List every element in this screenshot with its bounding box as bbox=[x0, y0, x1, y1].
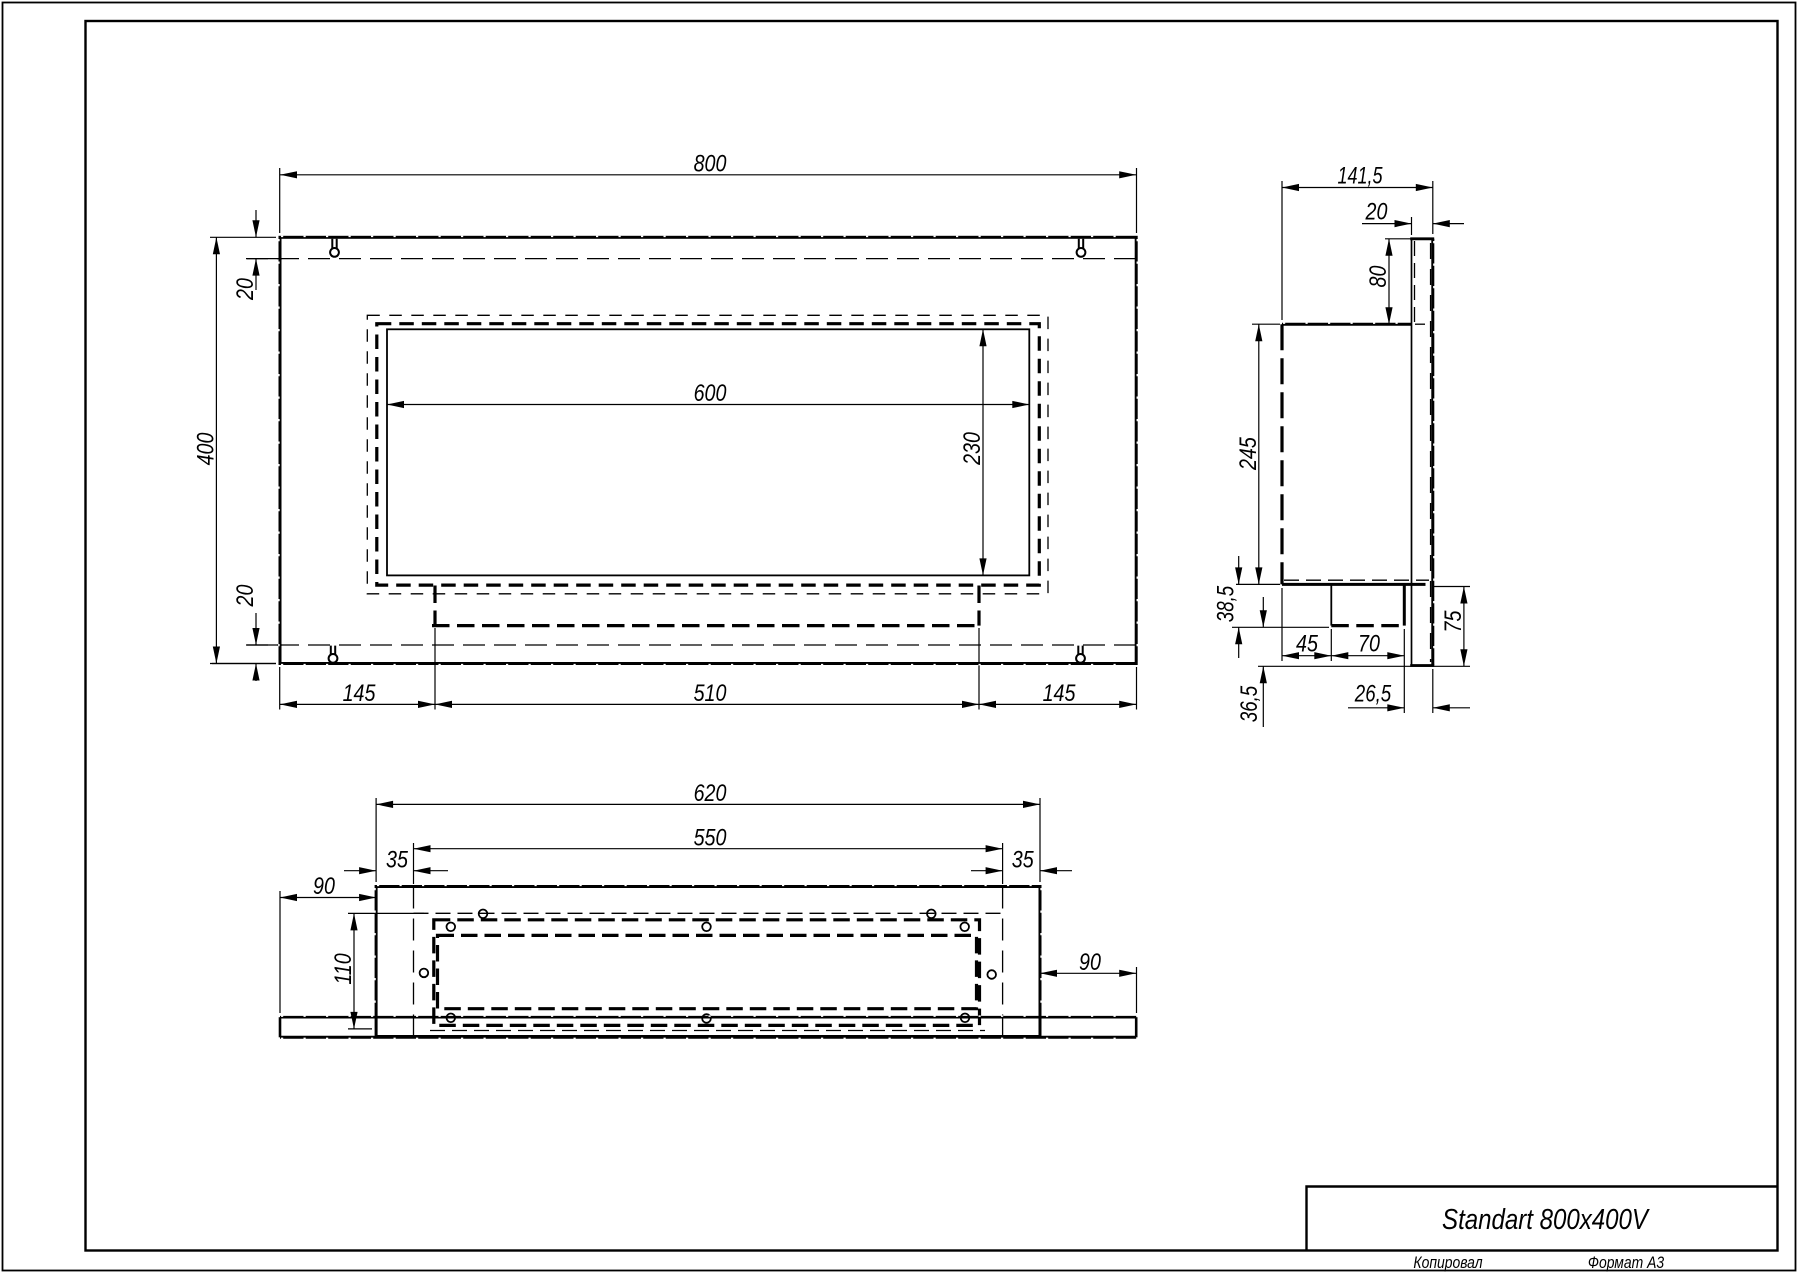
svg-text:400: 400 bbox=[192, 432, 219, 466]
svg-text:600: 600 bbox=[694, 379, 728, 406]
svg-text:Standart 800x400V: Standart 800x400V bbox=[1442, 1203, 1650, 1236]
svg-text:35: 35 bbox=[386, 845, 409, 872]
svg-text:20: 20 bbox=[231, 277, 258, 300]
svg-text:145: 145 bbox=[343, 679, 377, 706]
svg-text:550: 550 bbox=[694, 823, 728, 850]
svg-text:38,5: 38,5 bbox=[1213, 585, 1240, 622]
svg-text:110: 110 bbox=[329, 953, 356, 985]
svg-text:620: 620 bbox=[694, 779, 728, 806]
svg-text:20: 20 bbox=[231, 584, 258, 607]
svg-text:800: 800 bbox=[694, 150, 728, 177]
svg-text:510: 510 bbox=[694, 679, 728, 706]
svg-text:245: 245 bbox=[1234, 436, 1261, 470]
svg-text:70: 70 bbox=[1358, 630, 1381, 657]
svg-text:75: 75 bbox=[1439, 610, 1466, 633]
svg-text:230: 230 bbox=[958, 431, 985, 465]
svg-text:Формат А3: Формат А3 bbox=[1588, 1254, 1665, 1273]
svg-text:Копировал: Копировал bbox=[1413, 1254, 1482, 1273]
svg-text:90: 90 bbox=[1079, 948, 1102, 975]
svg-text:141,5: 141,5 bbox=[1337, 163, 1382, 189]
svg-text:45: 45 bbox=[1296, 630, 1319, 657]
svg-text:35: 35 bbox=[1012, 845, 1035, 872]
svg-text:80: 80 bbox=[1364, 265, 1391, 288]
svg-text:36,5: 36,5 bbox=[1236, 685, 1263, 722]
svg-text:26,5: 26,5 bbox=[1354, 680, 1392, 707]
svg-text:90: 90 bbox=[313, 872, 336, 899]
svg-text:145: 145 bbox=[1043, 679, 1077, 706]
svg-text:20: 20 bbox=[1365, 198, 1388, 225]
